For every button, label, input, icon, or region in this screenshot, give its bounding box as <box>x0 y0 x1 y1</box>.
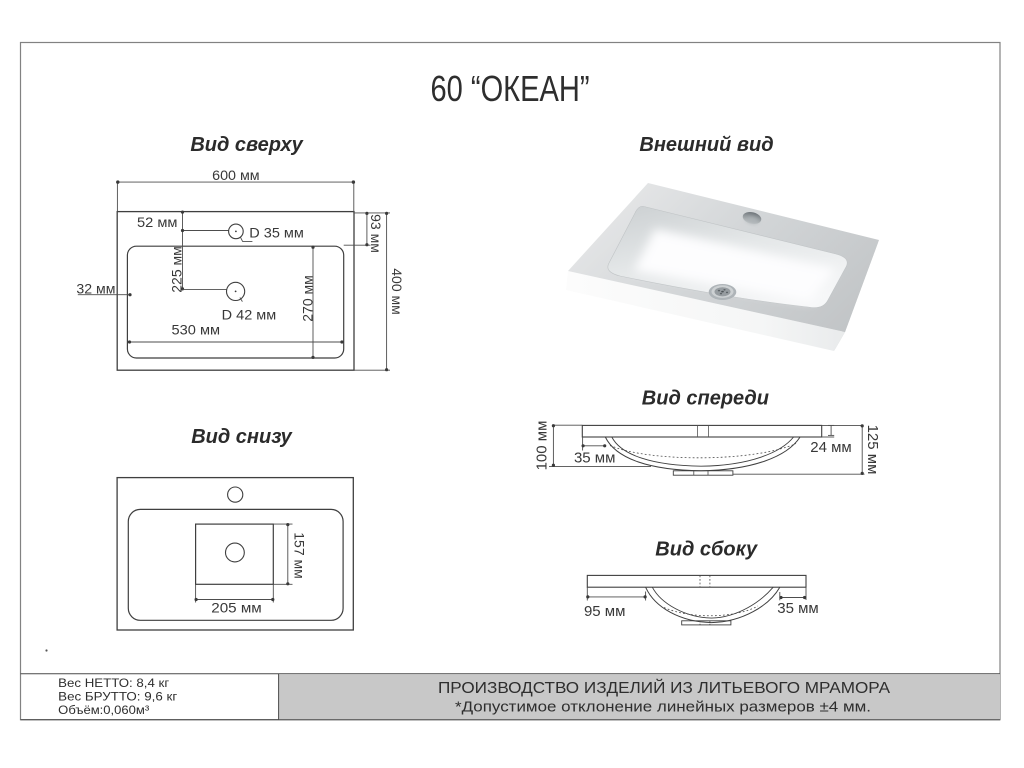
svg-text:35 мм: 35 мм <box>777 600 818 617</box>
svg-text:52 мм: 52 мм <box>137 214 178 230</box>
svg-text:*Допустимое отклонение линейны: *Допустимое отклонение линейных размеров… <box>455 699 871 716</box>
svg-text:270 мм: 270 мм <box>299 275 315 322</box>
svg-text:Вес БРУТТО: 9,6 кг: Вес БРУТТО: 9,6 кг <box>58 690 178 704</box>
svg-text:400 мм: 400 мм <box>389 268 405 315</box>
svg-text:93 мм: 93 мм <box>368 214 384 253</box>
svg-text:157 мм: 157 мм <box>291 532 307 579</box>
svg-text:32 мм: 32 мм <box>76 280 115 296</box>
svg-text:600 мм: 600 мм <box>212 167 260 183</box>
svg-text:ПРОИЗВОДСТВО ИЗДЕЛИЙ ИЗ ЛИТЬЕВ: ПРОИЗВОДСТВО ИЗДЕЛИЙ ИЗ ЛИТЬЕВОГО МРАМОР… <box>438 678 890 697</box>
svg-text:D 42 мм: D 42 мм <box>222 307 277 323</box>
svg-text:60 “ОКЕАН”: 60 “ОКЕАН” <box>431 68 590 109</box>
svg-text:100 мм: 100 мм <box>533 421 550 471</box>
svg-text:Вид спереди: Вид спереди <box>642 387 769 409</box>
svg-text:Вид сверху: Вид сверху <box>190 134 303 156</box>
svg-text:530 мм: 530 мм <box>172 322 221 338</box>
svg-text:Вид снизу: Вид снизу <box>191 426 292 448</box>
svg-text:95 мм: 95 мм <box>584 603 625 620</box>
svg-text:24 мм: 24 мм <box>810 439 851 456</box>
svg-text:205 мм: 205 мм <box>211 599 262 615</box>
svg-text:125 мм: 125 мм <box>864 425 881 475</box>
svg-text:Внешний вид: Внешний вид <box>639 134 773 156</box>
svg-text:Вес НЕТТО: 8,4 кг: Вес НЕТТО: 8,4 кг <box>58 676 170 690</box>
svg-text:225 мм: 225 мм <box>169 246 185 293</box>
svg-text:D 35 мм: D 35 мм <box>249 225 304 241</box>
svg-text:Вид сбоку: Вид сбоку <box>655 538 758 560</box>
svg-text:35 мм: 35 мм <box>574 450 615 467</box>
svg-text:Объём:0,060м³: Объём:0,060м³ <box>58 703 149 717</box>
